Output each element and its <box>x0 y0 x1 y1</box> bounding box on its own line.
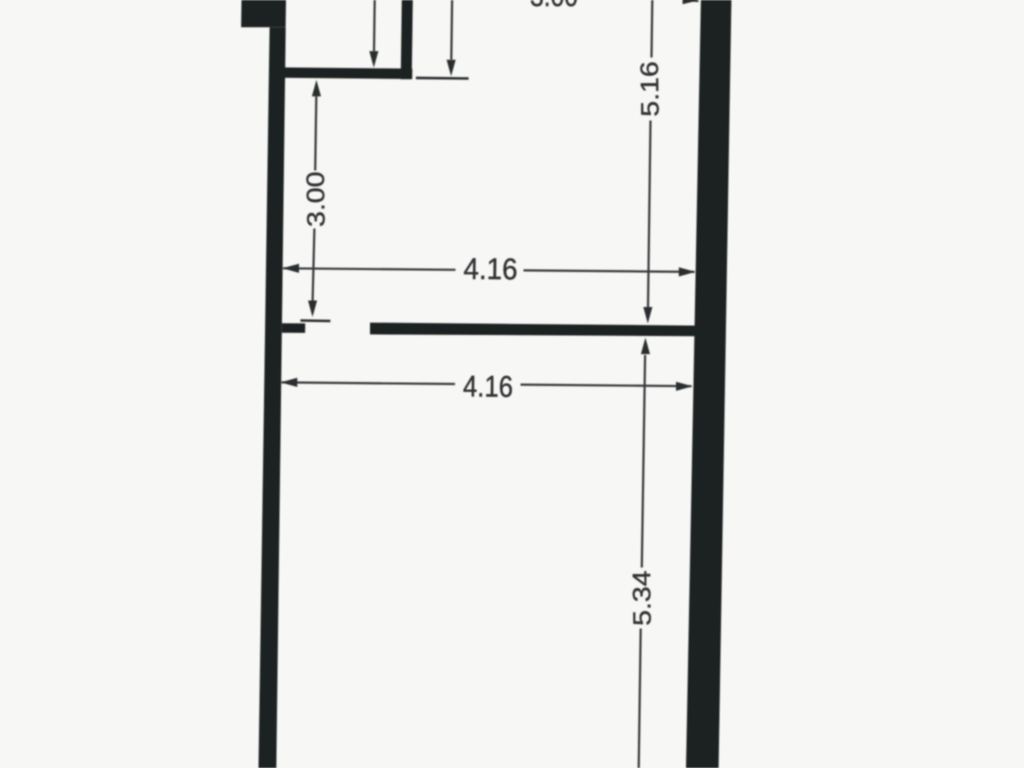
svg-text:4.16: 4.16 <box>463 253 517 287</box>
svg-text:5.16: 5.16 <box>635 61 664 117</box>
svg-text:3.00: 3.00 <box>530 0 578 13</box>
svg-text:4.16: 4.16 <box>463 370 513 403</box>
svg-text:3.00: 3.00 <box>301 171 330 227</box>
svg-text:5.34: 5.34 <box>628 570 657 626</box>
